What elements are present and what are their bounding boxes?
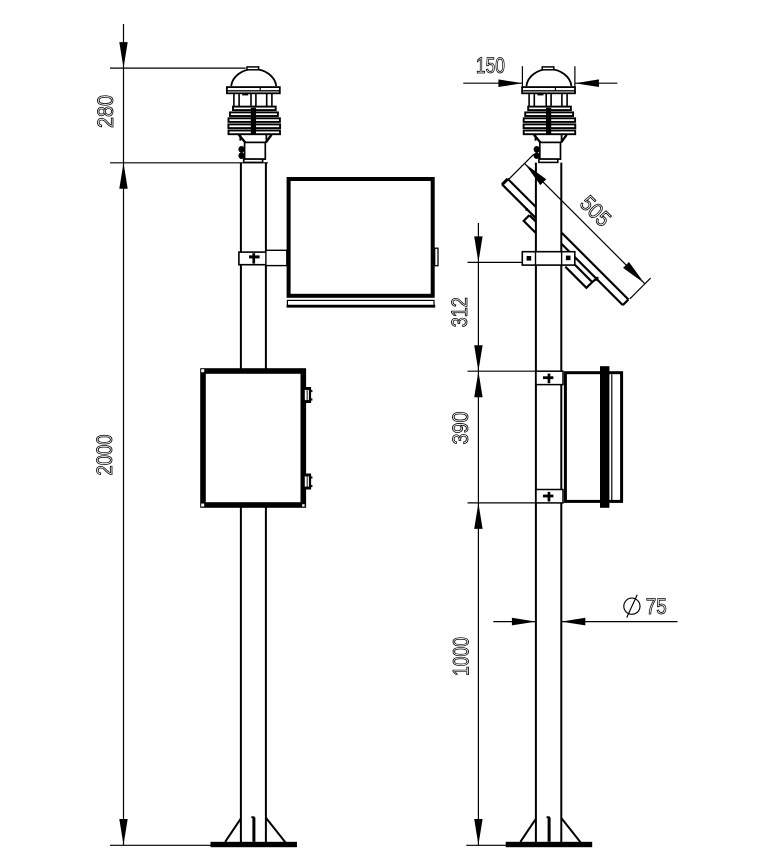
svg-text:150: 150 (476, 53, 505, 78)
svg-text:2000: 2000 (92, 435, 117, 476)
svg-text:312: 312 (447, 297, 472, 327)
svg-text:390: 390 (448, 412, 473, 445)
svg-text:1000: 1000 (449, 637, 474, 676)
svg-text:280: 280 (93, 95, 118, 128)
svg-text:75: 75 (646, 594, 667, 619)
